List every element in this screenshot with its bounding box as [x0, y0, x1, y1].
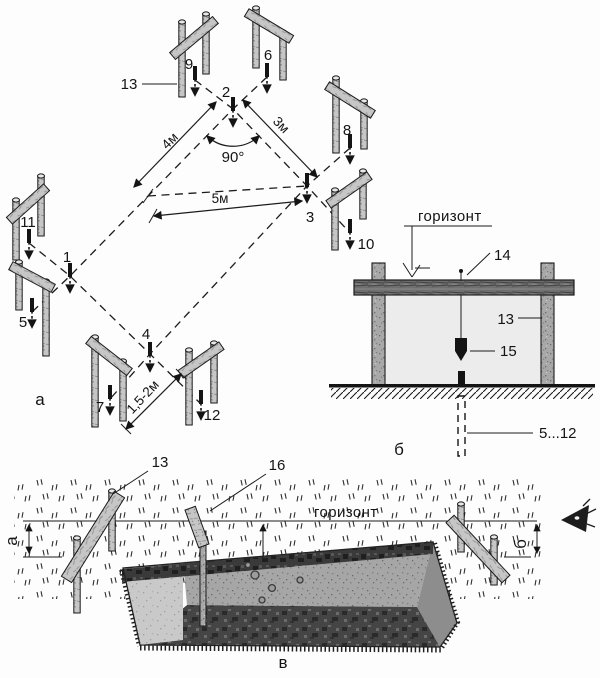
peg-5	[30, 298, 34, 327]
pit-bottom-spikes	[140, 648, 441, 650]
caption-a: а	[35, 390, 45, 409]
dim-5m-label: 5м	[212, 191, 229, 206]
figure-canvas: 4м 3м 5м 90° 1,5-2м 13 9 6 2 8	[0, 0, 600, 678]
foundation-layout-figure: 4м 3м 5м 90° 1,5-2м 13 9 6 2 8	[0, 0, 600, 678]
stake	[186, 348, 193, 425]
dim-b-label: б	[511, 539, 530, 549]
label-15: 15	[500, 343, 517, 360]
caption-v: в	[278, 653, 287, 672]
label-1: 1	[63, 249, 71, 266]
stone	[259, 597, 265, 603]
label-3: 3	[306, 209, 314, 226]
peg-7	[108, 385, 112, 414]
batter-board	[170, 17, 219, 60]
peg-10	[348, 219, 352, 248]
level-board	[354, 280, 574, 295]
label-13b: 13	[497, 311, 514, 328]
ground-line	[329, 384, 595, 388]
nail-head	[459, 269, 463, 273]
label-5-12: 5...12	[539, 425, 577, 442]
stone	[246, 563, 251, 568]
label-7: 7	[96, 399, 104, 416]
pit-floor	[140, 605, 440, 647]
ground-hatch	[331, 388, 593, 399]
batter-board-assembly-7	[86, 335, 133, 427]
leader-14	[467, 253, 490, 275]
dim-a-label: а	[2, 536, 21, 546]
label-14: 14	[494, 247, 511, 264]
horizon-arrow	[403, 263, 412, 277]
label-9: 9	[185, 56, 193, 73]
corner-peg-2	[231, 97, 235, 126]
dimension-4m: 4м	[134, 102, 216, 187]
dim-offset-label: 1,5-2м	[124, 377, 162, 417]
stone	[251, 571, 259, 579]
label-6: 6	[264, 47, 272, 64]
eye-icon	[561, 499, 596, 532]
horizon-label-b: горизонт	[418, 208, 482, 225]
pit-view-v: горизонт	[2, 454, 596, 672]
horizon-label-v: горизонт	[314, 504, 378, 521]
angle-label: 90°	[222, 149, 245, 166]
label-16: 16	[269, 457, 286, 474]
plan-view-a: 4м 3м 5м 90° 1,5-2м 13 9 6 2 8	[6, 6, 375, 434]
stake	[38, 174, 45, 236]
label-13v: 13	[152, 454, 169, 471]
batter-board	[244, 9, 293, 43]
label-8: 8	[343, 122, 351, 139]
label-5: 5	[19, 314, 27, 331]
dimension-offset: 1,5-2м	[121, 369, 186, 434]
dim-4m-label: 4м	[159, 130, 181, 152]
label-4: 4	[142, 326, 150, 343]
dimension-3m: 3м	[243, 100, 317, 177]
label-12: 12	[204, 407, 221, 424]
ground-peg	[458, 371, 465, 384]
dimension-5m: 5м	[149, 191, 302, 223]
horizon-arrow2	[412, 265, 420, 277]
stone	[297, 577, 303, 583]
label-2: 2	[222, 84, 230, 101]
angle-90: 90°	[207, 136, 259, 166]
dim-3m-label: 3м	[270, 114, 292, 137]
caption-b: б	[394, 440, 404, 459]
label-11: 11	[20, 214, 36, 231]
stone	[269, 585, 276, 592]
label-10: 10	[358, 236, 375, 253]
label-13: 13	[121, 76, 138, 93]
peg-12	[199, 390, 203, 419]
buried-stake-dashed	[458, 396, 465, 456]
sightline-8-3-4-7	[110, 148, 350, 399]
